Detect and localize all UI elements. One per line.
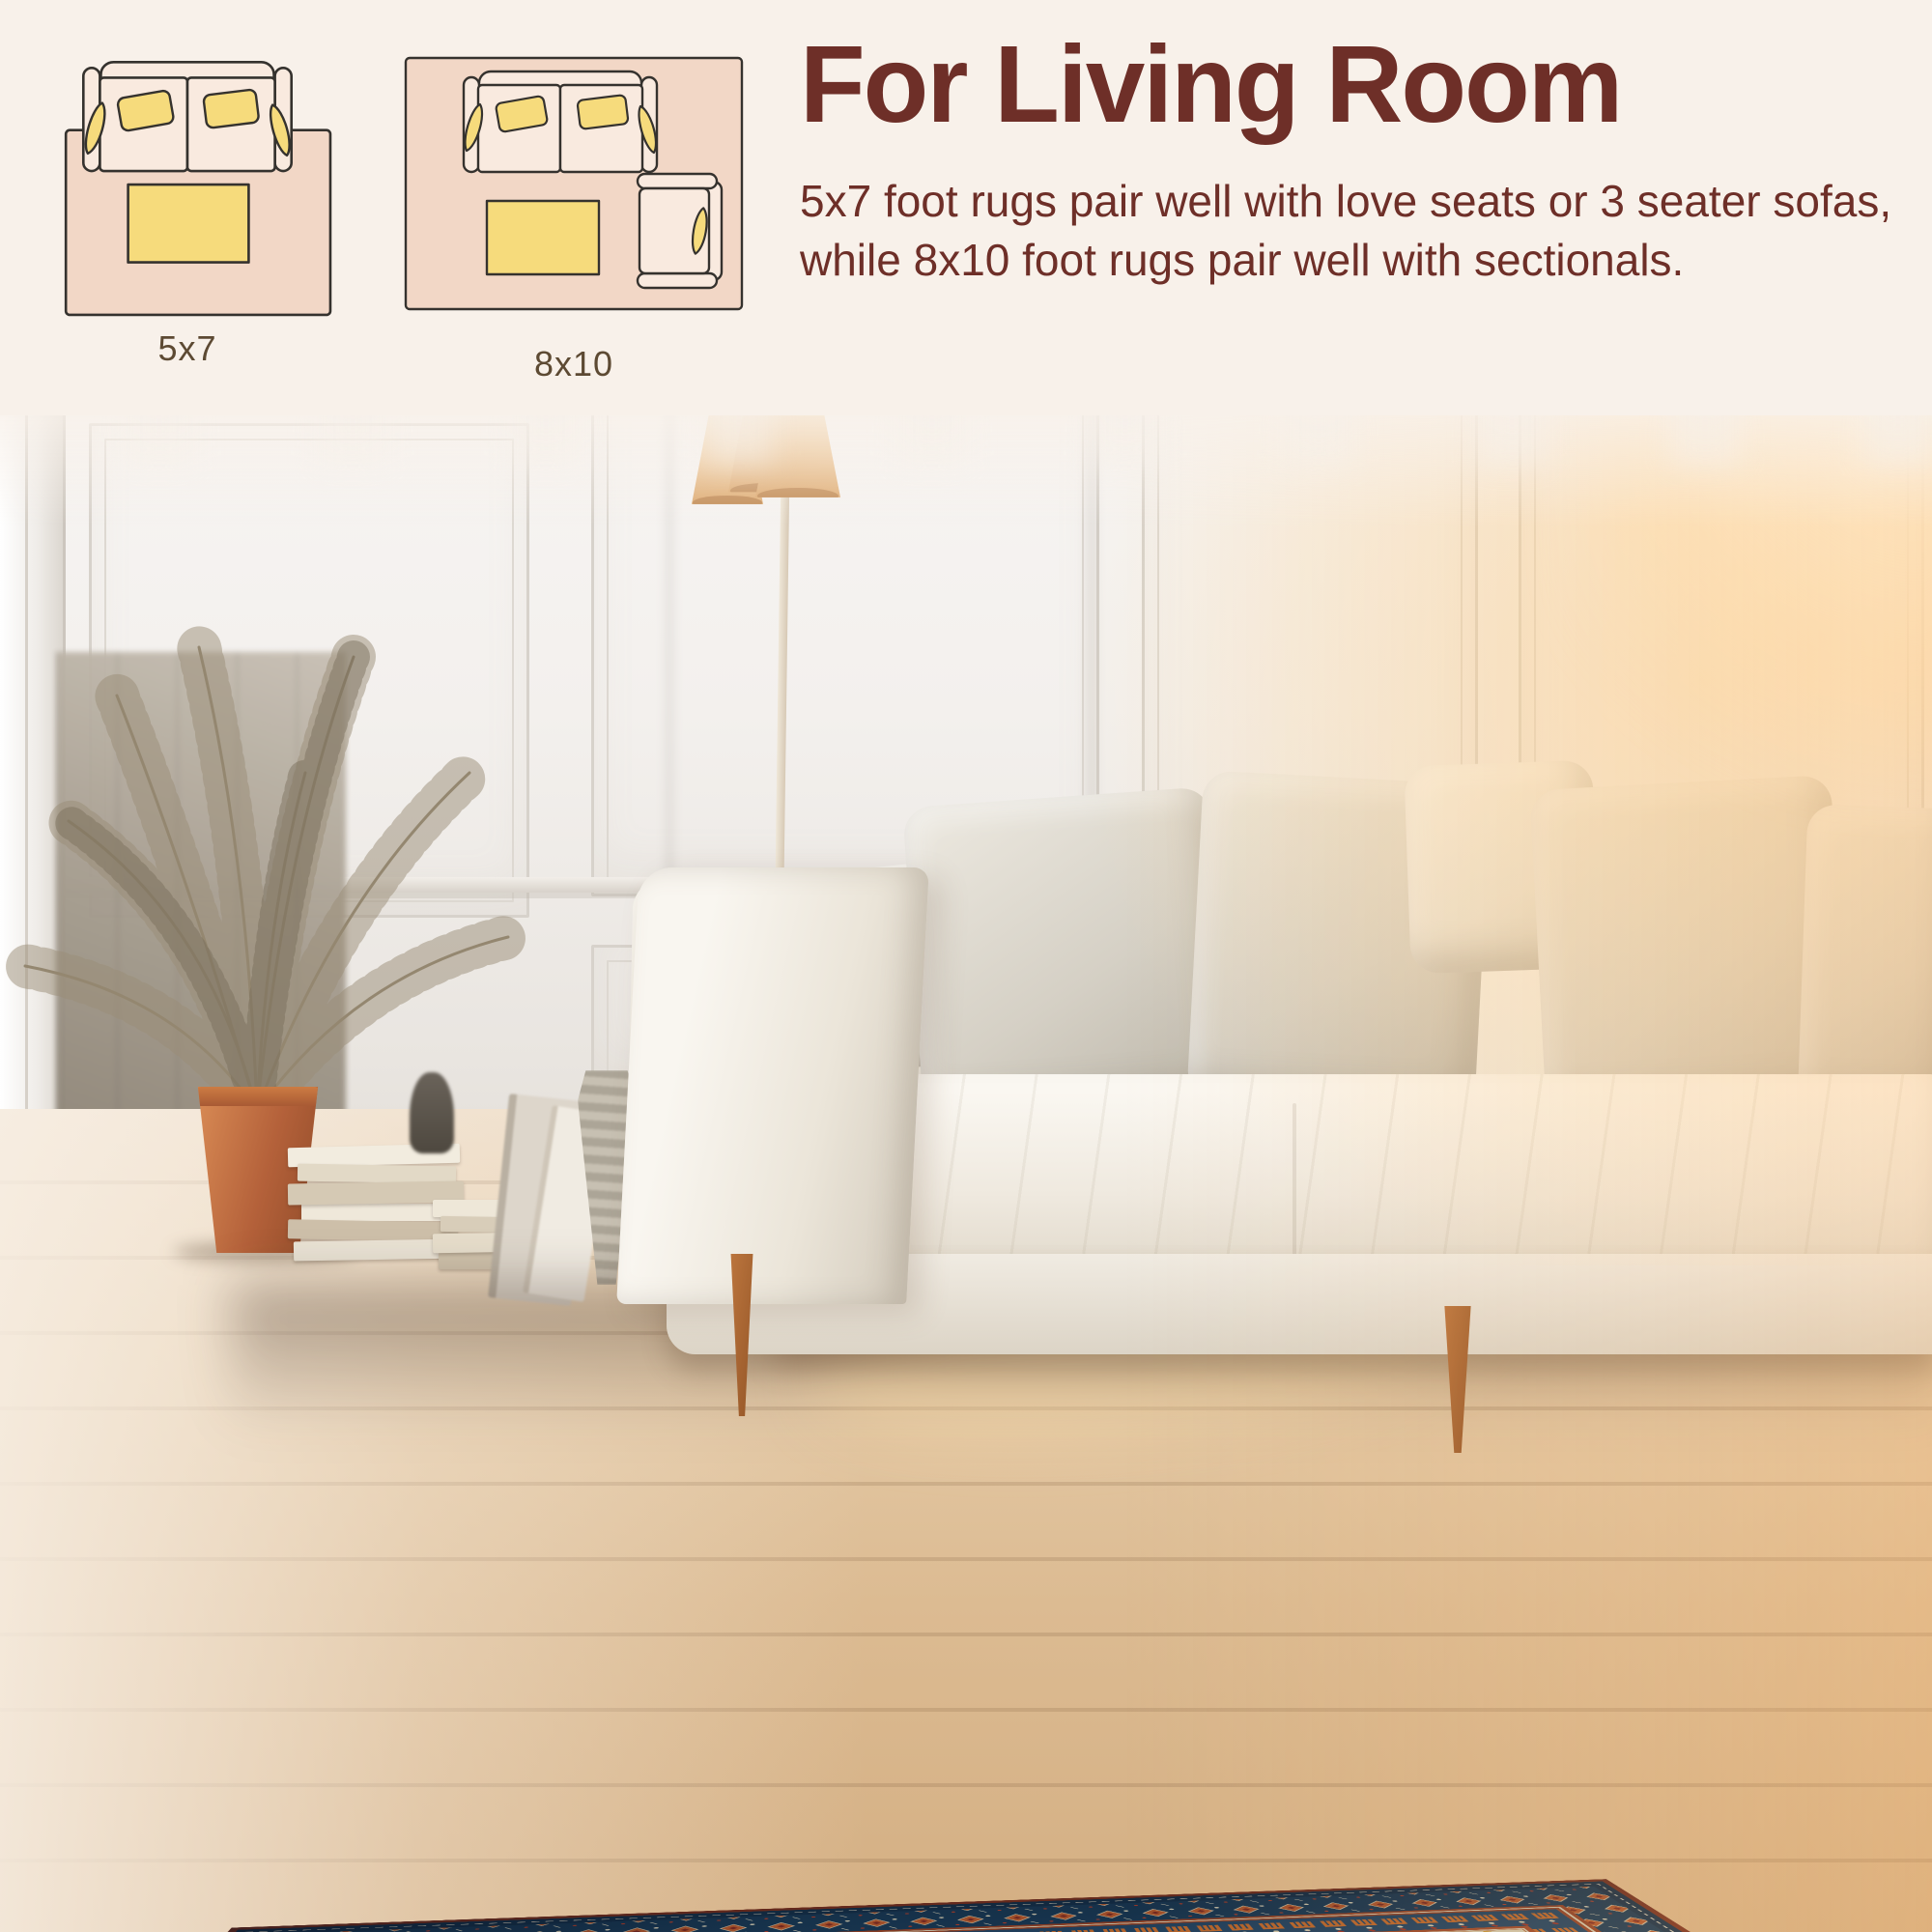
sofa-top-view-icon: [81, 62, 294, 171]
armchair-top-view-icon: [638, 174, 722, 288]
headline-block: For Living Room 5x7 foot rugs pair well …: [800, 25, 1920, 290]
sofa-pillow: [1798, 804, 1932, 1113]
diagram-label-8x10: 8x10: [394, 344, 753, 384]
sectional-rug-layout-icon: [394, 29, 753, 340]
size-guide-header: 5x7: [0, 0, 1932, 415]
rug-size-diagram-8x10: [394, 29, 753, 340]
diagram-label-5x7: 5x7: [39, 328, 336, 369]
sofa-armrest: [616, 867, 929, 1304]
book: [294, 1239, 456, 1262]
decor-sculpture: [410, 1072, 454, 1153]
living-room-photo: [0, 319, 1932, 1932]
sofa-top-view-icon: [461, 71, 660, 172]
coffee-table-icon: [128, 185, 249, 263]
page-description: 5x7 foot rugs pair well with love seats …: [800, 172, 1911, 290]
sofa-pillow: [902, 786, 1231, 1118]
coffee-table-icon: [487, 201, 599, 274]
page-title: For Living Room: [800, 25, 1898, 143]
area-rug: [0, 1858, 1932, 1932]
book: [301, 1204, 454, 1221]
persian-rug-pattern: [0, 1858, 1932, 1932]
dried-palm-plant: [0, 531, 547, 1135]
rug-size-diagram-5x7: [39, 19, 336, 321]
loveseat-rug-layout-icon: [39, 19, 336, 321]
